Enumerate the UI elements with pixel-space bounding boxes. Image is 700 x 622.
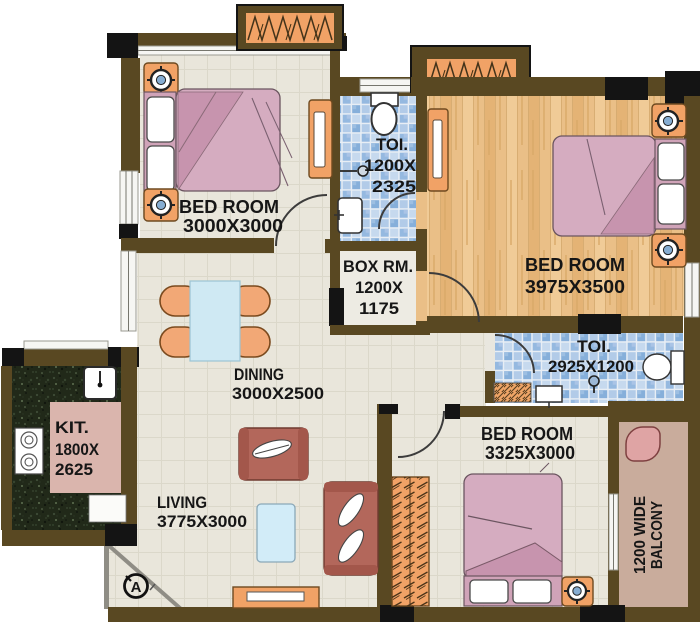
svg-text:2325: 2325 <box>372 177 416 196</box>
svg-text:3325X3000: 3325X3000 <box>485 442 575 463</box>
svg-text:1800X: 1800X <box>55 440 100 459</box>
svg-text:TOI.: TOI. <box>577 337 611 356</box>
svg-text:TOI.: TOI. <box>376 135 408 154</box>
svg-text:2925X1200: 2925X1200 <box>548 357 634 376</box>
svg-text:3000X2500: 3000X2500 <box>232 384 324 403</box>
svg-text:DINING: DINING <box>234 365 284 384</box>
svg-text:1200X: 1200X <box>355 278 404 297</box>
svg-text:KIT.: KIT. <box>55 418 89 437</box>
svg-text:2625: 2625 <box>55 460 93 479</box>
svg-text:BED ROOM: BED ROOM <box>525 254 625 275</box>
svg-text:BED ROOM: BED ROOM <box>481 423 573 444</box>
svg-text:BOX RM.: BOX RM. <box>343 257 413 276</box>
svg-text:A: A <box>131 579 142 596</box>
svg-text:1200X: 1200X <box>364 156 417 175</box>
svg-text:3975X3500: 3975X3500 <box>525 276 625 297</box>
svg-text:LIVING: LIVING <box>157 493 207 512</box>
svg-text:1200 WIDE: 1200 WIDE <box>632 496 649 574</box>
svg-text:3000X3000: 3000X3000 <box>183 215 283 236</box>
svg-text:BED ROOM: BED ROOM <box>179 196 279 217</box>
svg-text:1175: 1175 <box>359 299 399 318</box>
svg-text:BALCONY: BALCONY <box>649 500 666 569</box>
svg-text:3775X3000: 3775X3000 <box>157 512 247 531</box>
